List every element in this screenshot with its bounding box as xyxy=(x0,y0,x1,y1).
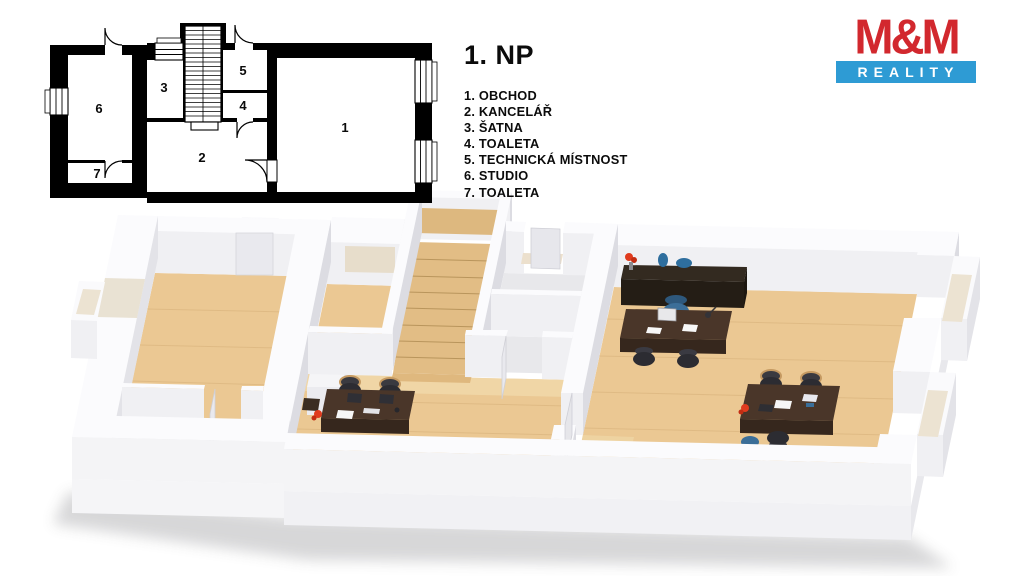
logo-reality-bar: REALITY xyxy=(836,61,976,83)
page: 1 2 3 4 5 6 7 1. NP 1. OBCHOD 2. KANCELÁ… xyxy=(0,0,1024,576)
room-label-1: 1 xyxy=(341,120,348,135)
room-label-2: 2 xyxy=(198,150,205,165)
room-label-7: 7 xyxy=(93,166,100,181)
logo-mm-text: M&M xyxy=(836,13,976,61)
floor-plan-2d: 1 2 3 4 5 6 7 xyxy=(40,10,440,210)
legend-item-2: 2. KANCELÁŘ xyxy=(464,104,627,120)
room-label-6: 6 xyxy=(95,101,102,116)
floor-title: 1. NP xyxy=(464,40,534,71)
scene-3d-root xyxy=(53,190,980,568)
plan2d-stairs xyxy=(185,26,221,130)
room-legend: 1. OBCHOD 2. KANCELÁŘ 3. ŠATNA 4. TOALET… xyxy=(464,88,627,201)
room-label-3: 3 xyxy=(160,80,167,95)
legend-item-4: 4. TOALETA xyxy=(464,136,627,152)
room-label-5: 5 xyxy=(239,63,246,78)
room-label-4: 4 xyxy=(239,98,247,113)
blue-bowl xyxy=(676,258,692,268)
legend-item-3: 3. ŠATNA xyxy=(464,120,627,136)
entry-door-panel xyxy=(531,228,560,269)
mm-reality-logo: M&M REALITY xyxy=(836,14,976,83)
legend-item-7: 7. TOALETA xyxy=(464,185,627,201)
legend-item-5: 5. TECHNICKÁ MÍSTNOST xyxy=(464,152,627,168)
legend-item-1: 1. OBCHOD xyxy=(464,88,627,104)
legend-item-6: 6. STUDIO xyxy=(464,168,627,184)
blue-vase xyxy=(658,253,668,267)
